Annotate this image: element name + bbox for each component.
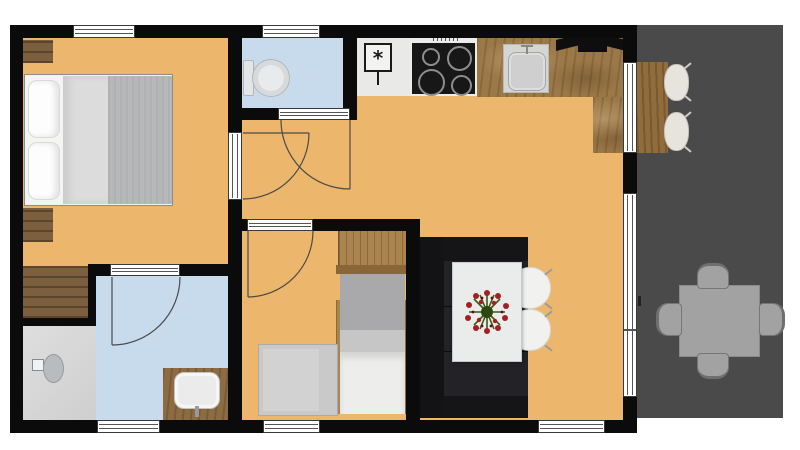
living-window-bottom: [538, 420, 605, 433]
wall-bedroom-hall: [228, 38, 242, 420]
wall-kidsroom-living: [406, 219, 420, 420]
wc-door-sill: [278, 108, 350, 120]
wall-left: [10, 25, 23, 433]
single-bed-horizontal: [258, 344, 338, 416]
nightstand: [23, 208, 53, 242]
duvet: [340, 352, 405, 414]
wardrobe-ledge: [336, 265, 408, 274]
nightstand: [23, 40, 53, 63]
ensuite-door-sill: [110, 264, 180, 276]
outdoor-chair: [697, 263, 729, 289]
outdoor-chair: [759, 303, 785, 336]
double-bed: [24, 74, 173, 206]
basin-faucet: [195, 406, 199, 417]
outdoor-chair: [697, 353, 729, 379]
cooktop-controls: [433, 38, 459, 41]
washbasin-vanity: [163, 368, 228, 420]
wall-wardrobe-niche-bottom: [10, 318, 96, 326]
kitchen-sink: [503, 44, 549, 93]
pillow: [28, 80, 60, 138]
blanket: [108, 76, 172, 204]
single-bed-vertical: [340, 274, 405, 414]
outdoor-table: [679, 285, 760, 357]
freezer: *: [356, 36, 410, 96]
duvet-fold: [63, 76, 108, 204]
slider-divider: [624, 329, 636, 331]
bar-counter: [637, 62, 668, 153]
dining-table: [452, 262, 522, 362]
shower-head: [43, 354, 64, 383]
kids-room-window-bottom: [263, 420, 320, 433]
terrace-slider-right: [623, 193, 637, 397]
faucet: [526, 47, 528, 54]
kitchen-bar-window-right: [623, 62, 637, 153]
freezer-symbol-box: *: [364, 43, 392, 72]
bathroom-window-bottom: [97, 420, 160, 433]
washbasin: [174, 372, 220, 409]
freezer-symbol-stem: [377, 72, 379, 85]
toilet-bowl: [252, 59, 290, 97]
kids-bedroom-door-sill: [247, 219, 313, 231]
wardrobe: [338, 225, 407, 266]
wall-wardrobe-niche: [88, 264, 96, 326]
built-in-wardrobe: [23, 266, 88, 318]
bar-stool: [664, 64, 689, 101]
outdoor-chair: [656, 303, 682, 336]
bedroom-window-top: [73, 25, 135, 38]
bar-stool: [664, 112, 689, 151]
slider-handle: [638, 296, 641, 306]
cooktop: [410, 36, 477, 96]
pillow: [28, 142, 60, 200]
master-bedroom-door-sill: [228, 132, 242, 200]
wc-window-top: [262, 25, 320, 38]
kitchen-counter-return: [593, 97, 623, 153]
floor-plan: *: [0, 0, 800, 450]
